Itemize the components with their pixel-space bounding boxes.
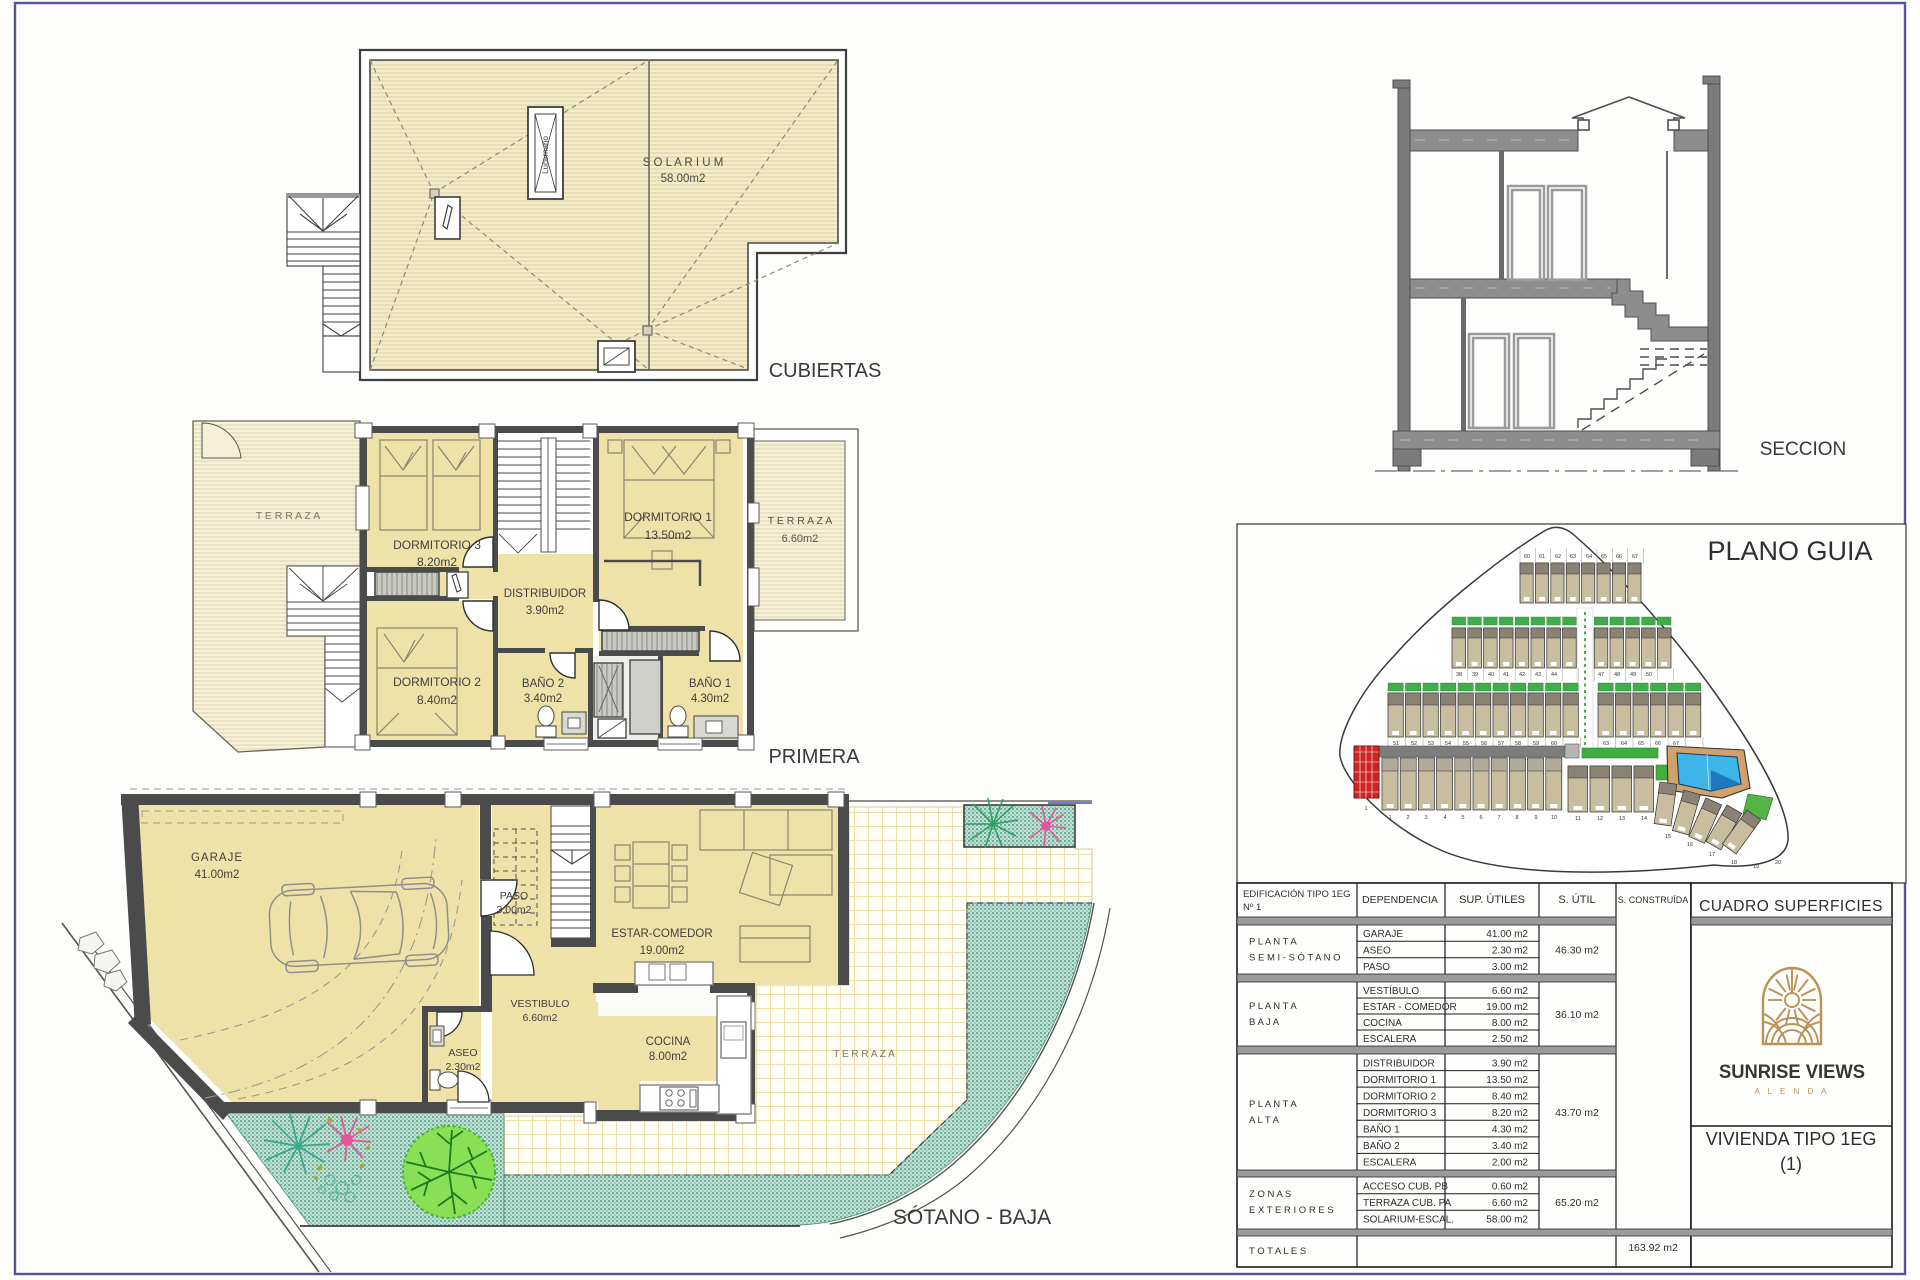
svg-text:56: 56 [1481,741,1487,747]
svg-text:(1): (1) [1780,1154,1802,1174]
svg-text:163.92 m2: 163.92 m2 [1628,1242,1678,1254]
svg-text:DORMITORIO 2: DORMITORIO 2 [1363,1091,1437,1102]
svg-text:59: 59 [1533,741,1539,747]
svg-text:S O L A R I U M: S O L A R I U M [643,157,724,169]
svg-text:1: 1 [1364,806,1367,812]
svg-text:T E R R A Z A: T E R R A Z A [256,510,321,522]
svg-text:0.60 m2: 0.60 m2 [1492,1181,1529,1192]
svg-text:BAÑO 1: BAÑO 1 [1363,1123,1400,1136]
svg-text:20: 20 [1775,860,1781,866]
svg-text:PLANO GUIA: PLANO GUIA [1707,536,1872,566]
svg-text:53: 53 [1428,741,1434,747]
svg-text:6.60m2: 6.60m2 [522,1012,557,1024]
svg-text:ESCALERA: ESCALERA [1363,1034,1417,1045]
svg-text:2.50 m2: 2.50 m2 [1492,1034,1529,1045]
svg-text:S. ÚTIL: S. ÚTIL [1558,893,1595,906]
svg-text:63: 63 [1570,554,1576,560]
svg-text:10: 10 [1551,815,1557,821]
svg-text:15: 15 [1665,834,1671,840]
svg-text:VIVIENDA TIPO 1EG: VIVIENDA TIPO 1EG [1706,1129,1877,1149]
svg-text:PRIMERA: PRIMERA [768,746,860,768]
svg-text:S E M I - S Ó T A N O: S E M I - S Ó T A N O [1249,953,1341,964]
svg-text:66: 66 [1655,741,1661,747]
svg-text:8.40m2: 8.40m2 [417,693,457,707]
svg-text:3.40 m2: 3.40 m2 [1492,1141,1529,1152]
svg-text:64: 64 [1621,741,1627,747]
svg-text:VESTÍBULO: VESTÍBULO [1363,984,1419,997]
svg-text:Lucernario: Lucernario [541,136,550,174]
svg-text:BAÑO 2: BAÑO 2 [1363,1139,1400,1152]
svg-text:62: 62 [1555,554,1561,560]
svg-text:17: 17 [1709,852,1715,858]
svg-text:64: 64 [1586,554,1592,560]
svg-text:8: 8 [1515,815,1518,821]
svg-text:SOLARIUM-ESCAL.: SOLARIUM-ESCAL. [1363,1215,1454,1226]
svg-text:DORMITORIO 3: DORMITORIO 3 [1363,1108,1437,1119]
svg-text:65.20 m2: 65.20 m2 [1555,1197,1599,1209]
svg-text:18: 18 [1731,860,1737,866]
svg-text:3.00 m2: 3.00 m2 [1492,962,1529,973]
svg-text:55: 55 [1463,741,1469,747]
svg-text:13.50 m2: 13.50 m2 [1486,1075,1528,1086]
svg-text:ESTAR-COMEDOR: ESTAR-COMEDOR [611,928,712,940]
svg-text:1: 1 [1388,815,1391,821]
svg-text:2.00 m2: 2.00 m2 [1492,1158,1529,1169]
svg-text:P L A N T A: P L A N T A [1249,937,1297,948]
svg-text:48: 48 [1614,672,1620,678]
svg-text:4.30 m2: 4.30 m2 [1492,1125,1529,1136]
svg-text:41.00m2: 41.00m2 [195,869,240,881]
svg-text:58.00 m2: 58.00 m2 [1486,1215,1528,1226]
svg-text:E X T E R I O R E S: E X T E R I O R E S [1249,1205,1334,1216]
svg-text:EDIFICACIÓN TIPO 1EG: EDIFICACIÓN TIPO 1EG [1243,889,1351,900]
svg-text:38: 38 [1456,672,1462,678]
svg-text:6.60 m2: 6.60 m2 [1492,1198,1529,1209]
svg-text:65: 65 [1601,554,1607,560]
svg-text:61: 61 [1539,554,1545,560]
svg-text:ESTAR - COMEDOR: ESTAR - COMEDOR [1363,1002,1457,1013]
svg-text:BAÑO 2: BAÑO 2 [522,677,564,690]
svg-text:S. CONSTRUÍDA: S. CONSTRUÍDA [1618,895,1689,905]
svg-text:3: 3 [1424,815,1427,821]
svg-text:DORMITORIO 3: DORMITORIO 3 [393,538,481,552]
svg-text:19: 19 [1753,864,1759,870]
svg-text:COCINA: COCINA [1363,1018,1402,1029]
svg-text:DORMITORIO 1: DORMITORIO 1 [1363,1075,1437,1086]
svg-text:3.00m2: 3.00m2 [496,904,531,916]
svg-text:SÓTANO - BAJA: SÓTANO - BAJA [893,1206,1051,1229]
svg-text:ASEO: ASEO [448,1047,477,1059]
svg-text:CUADRO SUPERFICIES: CUADRO SUPERFICIES [1699,898,1883,915]
svg-text:DEPENDENCIA: DEPENDENCIA [1362,894,1438,906]
svg-text:8.00 m2: 8.00 m2 [1492,1018,1529,1029]
svg-text:41.00 m2: 41.00 m2 [1486,929,1528,940]
svg-text:6: 6 [1479,815,1482,821]
svg-text:42: 42 [1519,672,1525,678]
svg-text:A L T A: A L T A [1249,1115,1280,1126]
svg-text:50: 50 [1646,672,1652,678]
svg-text:PASO: PASO [500,890,528,902]
svg-text:2.30 m2: 2.30 m2 [1492,946,1529,957]
svg-text:8.40 m2: 8.40 m2 [1492,1091,1529,1102]
svg-text:19.00 m2: 19.00 m2 [1486,1002,1528,1013]
svg-text:66: 66 [1616,554,1622,560]
svg-text:8.20 m2: 8.20 m2 [1492,1108,1529,1119]
svg-text:49: 49 [1630,672,1636,678]
svg-text:13.50m2: 13.50m2 [645,528,692,542]
svg-text:T O T A L E S: T O T A L E S [1249,1246,1306,1257]
svg-text:Z O N A S: Z O N A S [1249,1189,1291,1200]
svg-text:47: 47 [1598,672,1604,678]
svg-text:14: 14 [1641,816,1647,822]
svg-text:BAÑO 1: BAÑO 1 [689,677,731,690]
svg-text:ACCESO CUB. PB: ACCESO CUB. PB [1363,1181,1448,1192]
svg-text:67: 67 [1673,741,1679,747]
svg-text:51: 51 [1393,741,1399,747]
svg-text:CUBIERTAS: CUBIERTAS [769,360,882,382]
svg-text:4.30m2: 4.30m2 [691,693,729,705]
svg-text:60: 60 [1551,741,1557,747]
svg-text:65: 65 [1638,741,1644,747]
svg-text:3.40m2: 3.40m2 [524,693,562,705]
svg-text:44: 44 [1551,672,1557,678]
svg-text:13: 13 [1619,816,1625,822]
svg-text:GARAJE: GARAJE [1363,929,1403,940]
svg-text:9: 9 [1534,815,1537,821]
svg-text:TERRAZA CUB. PA: TERRAZA CUB. PA [1363,1198,1451,1209]
svg-text:57: 57 [1498,741,1504,747]
svg-text:SUP. ÚTILES: SUP. ÚTILES [1459,893,1525,906]
svg-text:3.90m2: 3.90m2 [526,605,564,617]
svg-text:VESTIBULO: VESTIBULO [511,998,570,1010]
svg-text:2: 2 [1406,815,1409,821]
svg-text:P L A N T A: P L A N T A [1249,1001,1297,1012]
svg-text:T E R R A Z A: T E R R A Z A [833,1049,895,1060]
svg-text:6.60 m2: 6.60 m2 [1492,986,1529,997]
svg-text:5: 5 [1461,815,1464,821]
svg-text:P L A N T A: P L A N T A [1249,1099,1297,1110]
svg-text:GARAJE: GARAJE [191,852,243,864]
svg-text:52: 52 [1411,741,1417,747]
svg-text:DORMITORIO 2: DORMITORIO 2 [393,675,481,689]
svg-text:11: 11 [1575,816,1581,822]
svg-text:54: 54 [1445,741,1451,747]
svg-text:43.70 m2: 43.70 m2 [1555,1107,1599,1119]
svg-text:58: 58 [1515,741,1521,747]
svg-text:63: 63 [1603,741,1609,747]
svg-text:DISTRIBUIDOR: DISTRIBUIDOR [504,588,586,600]
svg-text:36.10 m2: 36.10 m2 [1555,1009,1599,1021]
svg-text:T E R R A Z A: T E R R A Z A [768,515,833,527]
svg-text:PASO: PASO [1363,962,1390,973]
svg-text:ESCALERA: ESCALERA [1363,1158,1417,1169]
svg-text:60: 60 [1524,554,1530,560]
svg-text:DORMITORIO 1: DORMITORIO 1 [624,510,712,524]
svg-text:3.90 m2: 3.90 m2 [1492,1058,1529,1069]
svg-text:Nº 1: Nº 1 [1243,902,1261,913]
svg-text:39: 39 [1472,672,1478,678]
svg-text:40: 40 [1488,672,1494,678]
svg-text:4: 4 [1443,815,1446,821]
svg-text:DISTRIBUIDOR: DISTRIBUIDOR [1363,1058,1435,1069]
svg-text:7: 7 [1497,815,1500,821]
svg-text:2.30m2: 2.30m2 [445,1061,480,1073]
svg-text:COCINA: COCINA [646,1036,691,1048]
svg-text:ASEO: ASEO [1363,946,1391,957]
svg-text:8.20m2: 8.20m2 [417,555,457,569]
svg-text:SUNRISE VIEWS: SUNRISE VIEWS [1719,1062,1865,1083]
svg-text:19.00m2: 19.00m2 [640,945,685,957]
svg-text:41: 41 [1503,672,1509,678]
svg-text:58.00m2: 58.00m2 [661,173,706,185]
svg-text:12: 12 [1597,816,1603,822]
svg-text:67: 67 [1632,554,1638,560]
svg-text:A L E N D A: A L E N D A [1755,1087,1830,1096]
svg-text:6.60m2: 6.60m2 [782,533,819,545]
svg-text:46.30 m2: 46.30 m2 [1555,945,1599,957]
svg-text:43: 43 [1535,672,1541,678]
svg-text:16: 16 [1687,842,1693,848]
svg-text:8.00m2: 8.00m2 [649,1051,687,1063]
svg-text:B A J A: B A J A [1249,1017,1280,1028]
svg-text:SECCION: SECCION [1760,439,1847,460]
